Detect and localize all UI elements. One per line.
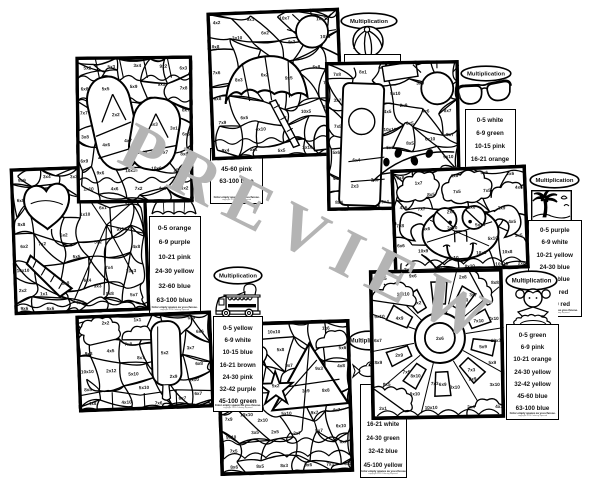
- svg-text:9x6: 9x6: [304, 462, 312, 467]
- svg-text:5x10: 5x10: [281, 411, 292, 416]
- svg-text:10x10: 10x10: [17, 268, 30, 273]
- svg-text:3x9: 3x9: [302, 388, 310, 393]
- svg-text:6x7: 6x7: [374, 338, 382, 343]
- svg-text:10x10: 10x10: [80, 369, 93, 375]
- svg-text:9x7: 9x7: [285, 363, 293, 368]
- svg-text:9x4: 9x4: [381, 199, 389, 204]
- svg-text:8x7: 8x7: [444, 108, 452, 113]
- svg-text:5x10: 5x10: [448, 255, 459, 260]
- svg-text:5x2: 5x2: [83, 65, 91, 70]
- svg-text:4x6: 4x6: [422, 226, 430, 231]
- svg-text:6x10: 6x10: [425, 136, 436, 141]
- svg-text:4x8: 4x8: [132, 244, 140, 249]
- svg-text:5x6: 5x6: [332, 150, 340, 155]
- svg-text:3x4: 3x4: [43, 174, 51, 179]
- svg-text:4x8: 4x8: [337, 363, 345, 368]
- svg-text:4x8: 4x8: [88, 401, 96, 406]
- svg-text:7x2: 7x2: [38, 241, 46, 246]
- svg-text:6x2: 6x2: [60, 232, 68, 237]
- svg-text:7x7: 7x7: [80, 110, 88, 115]
- svg-text:4x6: 4x6: [400, 205, 408, 210]
- svg-text:6x9: 6x9: [439, 382, 447, 387]
- svg-text:6x4: 6x4: [353, 158, 361, 163]
- svg-text:9x10: 9x10: [390, 91, 401, 96]
- svg-text:5x5: 5x5: [102, 86, 110, 91]
- svg-text:3x5: 3x5: [515, 233, 523, 238]
- svg-text:4x6: 4x6: [422, 108, 430, 113]
- svg-text:9x3: 9x3: [84, 351, 92, 356]
- svg-text:9x7: 9x7: [311, 410, 319, 415]
- svg-text:8x1: 8x1: [359, 69, 367, 74]
- svg-text:6x7: 6x7: [340, 439, 348, 444]
- svg-text:8x10: 8x10: [410, 391, 421, 396]
- svg-text:6x8: 6x8: [214, 96, 222, 101]
- svg-text:5x8: 5x8: [312, 64, 320, 69]
- svg-text:9x5: 9x5: [285, 75, 293, 80]
- svg-text:5x6: 5x6: [480, 170, 488, 175]
- svg-text:8x3: 8x3: [235, 77, 243, 82]
- svg-text:2x1: 2x1: [379, 406, 387, 411]
- svg-text:7x5: 7x5: [453, 189, 461, 194]
- svg-text:4x6: 4x6: [450, 173, 458, 178]
- svg-text:8x5: 8x5: [256, 464, 264, 469]
- svg-text:5x6: 5x6: [339, 345, 347, 350]
- svg-text:5x7: 5x7: [315, 428, 323, 433]
- svg-text:10x5: 10x5: [301, 109, 312, 114]
- svg-text:3x10: 3x10: [490, 382, 501, 387]
- svg-text:10x6: 10x6: [476, 250, 487, 255]
- svg-text:2x9: 2x9: [169, 374, 177, 379]
- svg-text:3x5: 3x5: [251, 430, 259, 435]
- svg-text:5x6: 5x6: [386, 145, 394, 150]
- svg-text:6x10: 6x10: [336, 423, 347, 428]
- svg-text:9x10: 9x10: [116, 226, 127, 231]
- svg-text:8x5: 8x5: [406, 141, 414, 146]
- svg-text:8x4: 8x4: [335, 200, 343, 205]
- svg-text:3x7: 3x7: [186, 345, 194, 350]
- svg-text:4x5: 4x5: [384, 109, 392, 114]
- svg-text:10x3: 10x3: [126, 268, 137, 273]
- svg-text:8x8: 8x8: [106, 291, 114, 296]
- svg-text:6x3: 6x3: [179, 65, 187, 70]
- svg-text:5x9: 5x9: [130, 84, 138, 89]
- svg-text:3x10: 3x10: [302, 145, 313, 150]
- svg-text:9x2: 9x2: [159, 64, 167, 69]
- svg-text:2x3: 2x3: [447, 209, 455, 214]
- svg-text:7x4: 7x4: [105, 265, 113, 270]
- svg-text:2x10: 2x10: [258, 418, 269, 423]
- svg-text:4x4: 4x4: [333, 176, 341, 181]
- svg-text:3x9: 3x9: [416, 80, 424, 85]
- svg-text:7x5: 7x5: [334, 124, 342, 129]
- svg-text:6x7: 6x7: [194, 391, 202, 396]
- svg-text:9x3: 9x3: [315, 366, 323, 371]
- svg-text:8x7: 8x7: [136, 355, 144, 360]
- svg-text:4x6: 4x6: [102, 142, 110, 147]
- svg-text:2x2: 2x2: [112, 112, 120, 117]
- svg-text:4x3: 4x3: [287, 39, 295, 44]
- svg-text:7x8: 7x8: [124, 341, 132, 346]
- svg-text:4x2: 4x2: [213, 20, 221, 25]
- svg-text:9x6: 9x6: [20, 306, 28, 311]
- svg-text:Multiplication: Multiplication: [512, 278, 552, 285]
- svg-text:3x8: 3x8: [81, 134, 89, 139]
- svg-text:7x7: 7x7: [418, 206, 426, 211]
- svg-text:7x9: 7x9: [219, 120, 227, 125]
- svg-text:9x6: 9x6: [97, 170, 105, 175]
- svg-text:1x8: 1x8: [468, 204, 476, 209]
- svg-text:9x9: 9x9: [18, 178, 26, 183]
- svg-text:6x10: 6x10: [188, 377, 199, 382]
- svg-text:1x1: 1x1: [40, 291, 48, 296]
- svg-text:7x5: 7x5: [483, 188, 491, 193]
- svg-text:7x8: 7x8: [333, 72, 341, 77]
- svg-text:2x3: 2x3: [351, 184, 359, 189]
- svg-text:10x8: 10x8: [502, 249, 513, 254]
- svg-text:6x5: 6x5: [240, 115, 248, 120]
- svg-text:8x9: 8x9: [374, 360, 382, 365]
- svg-text:8x6: 8x6: [230, 464, 238, 469]
- svg-text:9x10: 9x10: [443, 154, 454, 159]
- svg-text:5x2: 5x2: [94, 239, 102, 244]
- svg-text:9x3: 9x3: [94, 283, 102, 288]
- svg-text:8x10: 8x10: [410, 373, 421, 378]
- svg-text:6x5: 6x5: [406, 121, 414, 126]
- svg-text:1x8: 1x8: [62, 280, 70, 285]
- svg-text:3x10: 3x10: [232, 35, 243, 40]
- svg-text:6x2: 6x2: [261, 72, 269, 77]
- svg-text:4x10: 4x10: [121, 400, 132, 405]
- svg-text:7x3: 7x3: [431, 381, 439, 386]
- svg-text:6x4: 6x4: [84, 278, 92, 283]
- svg-text:10x7: 10x7: [279, 15, 290, 20]
- svg-text:5x1: 5x1: [250, 147, 258, 152]
- svg-text:2x9: 2x9: [469, 376, 477, 381]
- svg-text:5x10: 5x10: [128, 371, 139, 376]
- svg-text:2x4: 2x4: [467, 404, 475, 409]
- svg-text:5x2: 5x2: [272, 383, 280, 388]
- svg-text:5x10: 5x10: [138, 385, 149, 390]
- svg-text:1x6: 1x6: [322, 326, 330, 331]
- svg-text:2x9: 2x9: [400, 103, 408, 108]
- svg-text:4x5: 4x5: [508, 219, 516, 224]
- svg-text:7x6: 7x6: [154, 400, 162, 405]
- svg-text:2x2: 2x2: [101, 320, 109, 325]
- svg-text:8x8: 8x8: [84, 387, 92, 392]
- svg-text:6x5: 6x5: [187, 315, 195, 320]
- svg-text:1x10: 1x10: [83, 186, 94, 191]
- svg-text:10x10: 10x10: [383, 127, 396, 132]
- svg-text:2x2: 2x2: [19, 288, 27, 293]
- svg-text:6x6: 6x6: [46, 306, 54, 311]
- svg-text:9x5: 9x5: [76, 300, 84, 305]
- svg-text:9x1: 9x1: [247, 17, 255, 22]
- svg-text:8x8: 8x8: [322, 388, 330, 393]
- svg-text:2x7: 2x7: [293, 431, 301, 436]
- svg-text:3x10: 3x10: [447, 225, 458, 230]
- svg-text:1x10: 1x10: [80, 212, 91, 217]
- svg-text:3x4: 3x4: [133, 63, 141, 68]
- svg-text:1x7: 1x7: [415, 180, 423, 185]
- svg-text:5x8: 5x8: [277, 347, 285, 352]
- svg-text:6x1: 6x1: [99, 205, 107, 210]
- svg-text:2x5: 2x5: [371, 177, 379, 182]
- svg-text:5x2: 5x2: [160, 350, 168, 355]
- svg-text:10x10: 10x10: [267, 329, 280, 334]
- svg-text:8x8: 8x8: [18, 222, 26, 227]
- svg-text:8x8: 8x8: [212, 44, 220, 49]
- svg-text:Multiplication: Multiplication: [536, 178, 574, 184]
- svg-text:8x3: 8x3: [280, 463, 288, 468]
- svg-text:5x10: 5x10: [488, 236, 499, 241]
- svg-text:4x6: 4x6: [111, 186, 119, 191]
- svg-text:7x3: 7x3: [326, 461, 334, 466]
- svg-text:5x10: 5x10: [475, 222, 486, 227]
- svg-text:4x7: 4x7: [333, 407, 341, 412]
- svg-text:9x5: 9x5: [158, 82, 166, 87]
- svg-text:7x9: 7x9: [225, 417, 233, 422]
- svg-text:10x3: 10x3: [491, 338, 502, 343]
- svg-text:10x10: 10x10: [425, 405, 438, 410]
- svg-text:3x7: 3x7: [334, 98, 342, 103]
- svg-text:8x7: 8x7: [182, 107, 190, 112]
- svg-text:10x8: 10x8: [320, 34, 331, 39]
- svg-text:8x5: 8x5: [427, 192, 435, 197]
- svg-text:5x7: 5x7: [130, 292, 138, 297]
- svg-text:5x5: 5x5: [73, 254, 81, 259]
- svg-text:2x12: 2x12: [106, 368, 117, 373]
- svg-text:6x9: 6x9: [80, 158, 88, 163]
- svg-text:1x1: 1x1: [133, 317, 141, 322]
- svg-text:4x8: 4x8: [515, 185, 523, 190]
- svg-text:2x5: 2x5: [271, 429, 279, 434]
- svg-text:6x6: 6x6: [195, 329, 203, 334]
- svg-text:5x3: 5x3: [107, 64, 115, 69]
- svg-text:9x10: 9x10: [374, 314, 385, 319]
- svg-text:8x5: 8x5: [383, 382, 391, 387]
- svg-text:7x8: 7x8: [396, 223, 404, 228]
- svg-text:6x8: 6x8: [81, 86, 89, 91]
- svg-text:8x10: 8x10: [450, 385, 461, 390]
- svg-text:4x10: 4x10: [256, 126, 267, 131]
- svg-text:7x5: 7x5: [230, 449, 238, 454]
- svg-text:3x9: 3x9: [498, 205, 506, 210]
- svg-text:6x7: 6x7: [178, 395, 186, 400]
- svg-text:10x10: 10x10: [240, 412, 253, 417]
- svg-text:2x9: 2x9: [395, 353, 403, 358]
- svg-text:7x8: 7x8: [180, 85, 188, 90]
- svg-text:7x6: 7x6: [213, 70, 221, 75]
- svg-text:5x5: 5x5: [278, 148, 286, 153]
- svg-text:5x9: 5x9: [488, 360, 496, 365]
- svg-text:4x5: 4x5: [106, 348, 114, 353]
- svg-text:1x6: 1x6: [506, 171, 514, 176]
- svg-text:6x8: 6x8: [17, 198, 25, 203]
- svg-text:7x3: 7x3: [468, 367, 476, 372]
- svg-text:7x5: 7x5: [403, 369, 411, 374]
- svg-text:8x7: 8x7: [446, 132, 454, 137]
- svg-text:6x2: 6x2: [20, 244, 28, 249]
- svg-text:Multiplication: Multiplication: [219, 274, 257, 280]
- svg-text:10x10: 10x10: [316, 16, 329, 22]
- svg-text:9x10: 9x10: [226, 435, 237, 440]
- svg-text:6x2: 6x2: [261, 30, 269, 35]
- svg-text:6x8: 6x8: [195, 361, 203, 366]
- svg-text:3x8: 3x8: [396, 175, 404, 180]
